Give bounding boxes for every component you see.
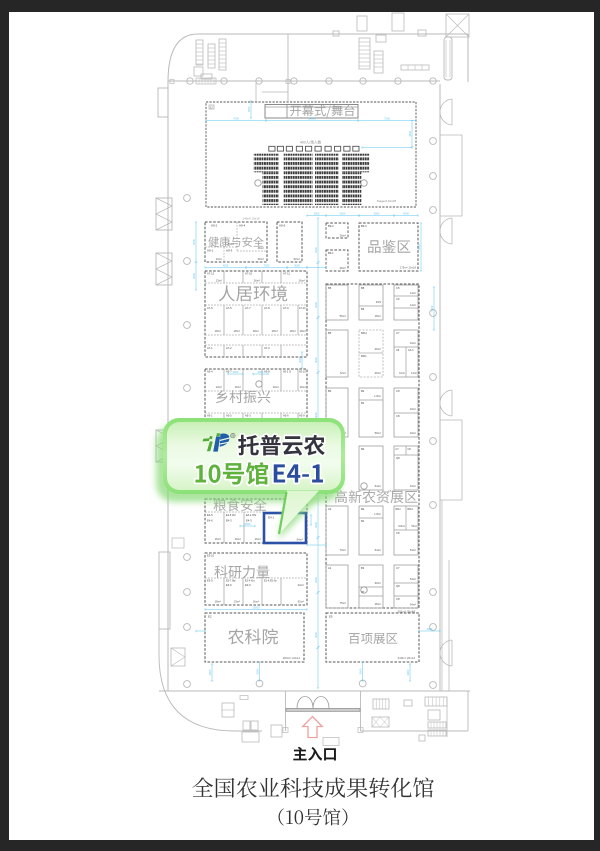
svg-text:34m²: 34m² — [410, 407, 416, 411]
svg-text:13m²: 13m² — [234, 600, 240, 604]
svg-text:A9-4: A9-4 — [239, 224, 246, 228]
svg-text:B8: B8 — [361, 286, 365, 290]
svg-text:B9-2: B9-2 — [328, 224, 334, 228]
svg-text:26m²: 26m² — [340, 266, 346, 270]
svg-text:18m²: 18m² — [215, 600, 221, 604]
svg-text:16m²: 16m² — [273, 385, 279, 389]
svg-text:A7-3: A7-3 — [264, 346, 270, 350]
svg-text:A9-6: A9-6 — [279, 224, 286, 228]
svg-text:B311: B311 — [396, 509, 402, 511]
svg-text:18m²: 18m² — [300, 329, 306, 333]
svg-text:54m²: 54m² — [412, 525, 418, 528]
svg-text:C7: C7 — [396, 331, 400, 335]
svg-text:1.8m²: 1.8m² — [374, 512, 381, 516]
svg-text:3000: 3000 — [298, 357, 302, 363]
svg-text:16m²: 16m² — [215, 537, 221, 541]
svg-text:3600: 3600 — [408, 130, 412, 136]
svg-text:B9-3: B9-3 — [361, 224, 367, 228]
svg-text:14m²: 14m² — [410, 303, 416, 307]
svg-text:A7-2: A7-2 — [226, 346, 232, 350]
svg-text:13m²: 13m² — [216, 279, 222, 283]
svg-text:B312: B312 — [361, 332, 367, 335]
svg-text:4500: 4500 — [245, 522, 251, 526]
svg-text:16m²: 16m² — [235, 537, 241, 541]
svg-text:3000: 3000 — [314, 412, 318, 418]
svg-text:E3-4 /6u: E3-4 /6u — [245, 580, 255, 583]
svg-text:14000: 14000 — [308, 117, 316, 121]
svg-text:Q8: Q8 — [396, 584, 400, 588]
svg-text:B1: B1 — [361, 401, 365, 405]
svg-text:3000: 3000 — [233, 370, 239, 374]
svg-text:56m²: 56m² — [375, 431, 381, 435]
svg-text:1500: 1500 — [247, 106, 251, 112]
svg-text:3000: 3000 — [406, 669, 410, 675]
svg-text:B2: B2 — [361, 447, 365, 451]
svg-text:E2-4 /E1-6u: E2-4 /E1-6u — [264, 580, 277, 583]
svg-text:B311: B311 — [361, 355, 367, 358]
svg-text:B4: B4 — [328, 389, 332, 393]
svg-text:A7-5: A7-5 — [226, 306, 232, 310]
svg-text:30m²: 30m² — [375, 581, 381, 585]
svg-text:240m² 20x12: 240m² 20x12 — [397, 656, 415, 660]
svg-text:E5: E5 — [329, 615, 333, 619]
svg-text:3000: 3000 — [258, 370, 264, 374]
svg-text:3000: 3000 — [314, 357, 318, 363]
svg-text:A7-7: A7-7 — [245, 306, 251, 310]
svg-text:A9-1: A9-1 — [207, 249, 214, 253]
svg-text:Q8: Q8 — [396, 456, 400, 460]
svg-text:A5-9: A5-9 — [299, 414, 305, 418]
svg-text:A7-10: A7-10 — [299, 307, 306, 310]
svg-text:B1: B1 — [361, 519, 365, 523]
svg-text:B2: B2 — [361, 507, 365, 511]
svg-text:75m²: 75m² — [340, 601, 346, 605]
svg-text:6000: 6000 — [403, 212, 409, 216]
svg-text:C8: C8 — [396, 414, 400, 418]
svg-text:A7-12: A7-12 — [207, 272, 215, 276]
svg-text:18m²: 18m² — [375, 314, 381, 318]
svg-text:A5-7: A5-7 — [226, 370, 232, 374]
svg-text:209m² 20x11: 209m² 20x11 — [283, 656, 301, 660]
svg-text:1.8m²: 1.8m² — [374, 394, 381, 398]
svg-text:E4-3: E4-3 — [226, 519, 232, 523]
svg-text:E2: E2 — [208, 615, 212, 619]
svg-text:26/3: 26/3 — [376, 300, 382, 304]
svg-text:46m²: 46m² — [258, 246, 264, 250]
svg-text:E4-6: E4-6 — [207, 519, 213, 523]
svg-text:E7: E7 — [210, 105, 214, 109]
svg-text:B6: B6 — [361, 307, 365, 311]
svg-text:B3: B3 — [361, 566, 365, 570]
svg-text:46m²: 46m² — [258, 257, 264, 261]
svg-text:16m²: 16m² — [255, 537, 261, 541]
svg-text:14m²: 14m² — [411, 371, 417, 375]
svg-text:54m²: 54m² — [297, 538, 303, 542]
svg-text:70m²: 70m² — [340, 548, 346, 552]
svg-text:5000: 5000 — [430, 305, 434, 311]
svg-text:72m²: 72m² — [340, 371, 346, 375]
svg-text:54m²: 54m² — [375, 548, 381, 552]
svg-text:46m²: 46m² — [228, 242, 234, 246]
svg-text:E3-6: E3-6 — [245, 583, 251, 587]
svg-text:3000: 3000 — [294, 264, 300, 268]
svg-text:3000: 3000 — [314, 247, 318, 253]
svg-text:3000: 3000 — [359, 668, 363, 674]
svg-text:A5-6: A5-6 — [283, 414, 289, 418]
svg-text:A7-6: A7-6 — [207, 306, 213, 310]
svg-text:C7: C7 — [396, 566, 400, 570]
svg-text:26m²: 26m² — [375, 347, 381, 351]
svg-text:18m²: 18m² — [234, 329, 240, 333]
svg-text:18m²: 18m² — [290, 329, 296, 333]
svg-text:A1: A1 — [328, 566, 332, 570]
svg-text:100m²: 100m² — [398, 525, 405, 528]
svg-text:140x4 10x16: 140x4 10x16 — [242, 217, 260, 221]
svg-text:E4-5 /6d: E4-5 /6d — [226, 514, 236, 517]
svg-text:A7-9: A7-9 — [283, 306, 289, 310]
svg-text:7000: 7000 — [233, 117, 239, 121]
svg-text:E4-1: E4-1 — [268, 516, 275, 520]
svg-text:B2: B2 — [361, 389, 365, 393]
svg-text:A5-3: A5-3 — [245, 414, 251, 418]
svg-text:3000: 3000 — [314, 302, 318, 308]
svg-text:34m²: 34m² — [410, 484, 416, 488]
svg-text:C6-m²: C6-m² — [388, 489, 395, 493]
svg-text:C8: C8 — [396, 531, 400, 535]
svg-text:A5-2 /3: A5-2 /3 — [283, 371, 292, 374]
svg-text:A5-5: A5-5 — [226, 414, 232, 418]
svg-text:54m²: 54m² — [375, 484, 381, 488]
svg-text:B312: B312 — [408, 509, 414, 511]
svg-text:14m²: 14m² — [410, 291, 416, 295]
svg-text:A9-2: A9-2 — [211, 224, 218, 228]
svg-text:3000: 3000 — [256, 668, 260, 674]
svg-text:C5: C5 — [396, 286, 400, 290]
svg-text:3000: 3000 — [314, 212, 320, 216]
svg-text:15000: 15000 — [252, 606, 260, 610]
svg-text:92m²: 92m² — [298, 600, 304, 604]
svg-text:A5-8: A5-8 — [264, 370, 270, 374]
svg-text:16m²: 16m² — [299, 279, 305, 283]
svg-text:4000: 4000 — [192, 273, 196, 279]
svg-text:E4-5: E4-5 — [207, 513, 213, 517]
svg-text:16m²: 16m² — [300, 385, 306, 389]
svg-text:10m²: 10m² — [399, 371, 405, 375]
svg-text:C4-3: C4-3 — [408, 349, 414, 352]
svg-text:3000: 3000 — [374, 212, 380, 216]
svg-text:E4-3: E4-3 — [246, 519, 252, 523]
svg-text:6000: 6000 — [340, 212, 346, 216]
svg-text:3000: 3000 — [208, 669, 212, 675]
svg-text:R: R — [231, 433, 234, 438]
svg-text:56m²: 56m² — [340, 314, 346, 318]
svg-text:E3-10: E3-10 — [207, 554, 215, 558]
svg-text:7200: 7200 — [384, 117, 390, 121]
svg-text:18m²: 18m² — [272, 329, 278, 333]
svg-text:3000: 3000 — [314, 632, 318, 638]
svg-text:C8: C8 — [396, 597, 400, 601]
svg-text:26m²: 26m² — [340, 234, 346, 238]
svg-text:E3-6: E3-6 — [226, 583, 232, 587]
svg-text:5000: 5000 — [417, 244, 421, 250]
svg-text:B6: B6 — [328, 286, 332, 290]
svg-text:54m²: 54m² — [410, 603, 416, 607]
svg-text:A5-4: A5-4 — [207, 370, 213, 374]
svg-text:400人/场人数: 400人/场人数 — [300, 140, 322, 145]
svg-text:A5-10: A5-10 — [299, 371, 306, 374]
svg-text:301m² 20x48: 301m² 20x48 — [397, 610, 415, 614]
svg-text:18m²: 18m² — [375, 602, 381, 606]
svg-text:13m²: 13m² — [216, 257, 222, 261]
svg-text:34m²: 34m² — [298, 583, 304, 587]
svg-text:5000: 5000 — [192, 239, 196, 245]
svg-text:3000: 3000 — [314, 577, 318, 583]
svg-text:18m²: 18m² — [253, 329, 259, 333]
svg-text:16m²: 16m² — [235, 385, 241, 389]
svg-text:E3-7 /8a: E3-7 /8a — [226, 580, 236, 583]
svg-text:E4-2 /5hf: E4-2 /5hf — [246, 514, 256, 517]
svg-text:C9: C9 — [396, 389, 400, 393]
svg-text:C6: C6 — [396, 297, 400, 301]
svg-text:A7-1: A7-1 — [207, 346, 213, 350]
svg-text:175m² 10x18: 175m² 10x18 — [400, 266, 417, 270]
svg-text:26m²: 26m² — [375, 371, 381, 375]
svg-text:62m²: 62m² — [294, 257, 300, 261]
svg-text:B5: B5 — [328, 331, 332, 335]
svg-text:3000: 3000 — [427, 627, 433, 631]
svg-text:54m²: 54m² — [410, 548, 416, 552]
svg-text:Stage/4 10x28: Stage/4 10x28 — [377, 199, 397, 203]
svg-text:16m²: 16m² — [254, 279, 260, 283]
svg-text:4000: 4000 — [223, 264, 229, 268]
svg-text:A9-3: A9-3 — [226, 249, 233, 253]
svg-text:18m²: 18m² — [215, 329, 221, 333]
svg-text:A2: A2 — [328, 507, 332, 511]
svg-text:A7-8: A7-8 — [264, 306, 270, 310]
svg-text:7300: 7300 — [264, 264, 270, 268]
svg-text:A7-11: A7-11 — [283, 272, 290, 276]
svg-text:54m²: 54m² — [410, 577, 416, 581]
svg-text:A5-1: A5-1 — [207, 414, 213, 418]
svg-text:34m²: 34m² — [410, 431, 416, 435]
svg-text:3000: 3000 — [314, 522, 318, 528]
svg-text:E3-9: E3-9 — [207, 579, 213, 583]
svg-text:13m²: 13m² — [216, 385, 222, 389]
svg-text:34m²: 34m² — [410, 341, 416, 345]
svg-text:A7-10: A7-10 — [245, 272, 253, 276]
svg-text:B9-1: B9-1 — [328, 251, 334, 255]
svg-text:16m²: 16m² — [253, 600, 259, 604]
